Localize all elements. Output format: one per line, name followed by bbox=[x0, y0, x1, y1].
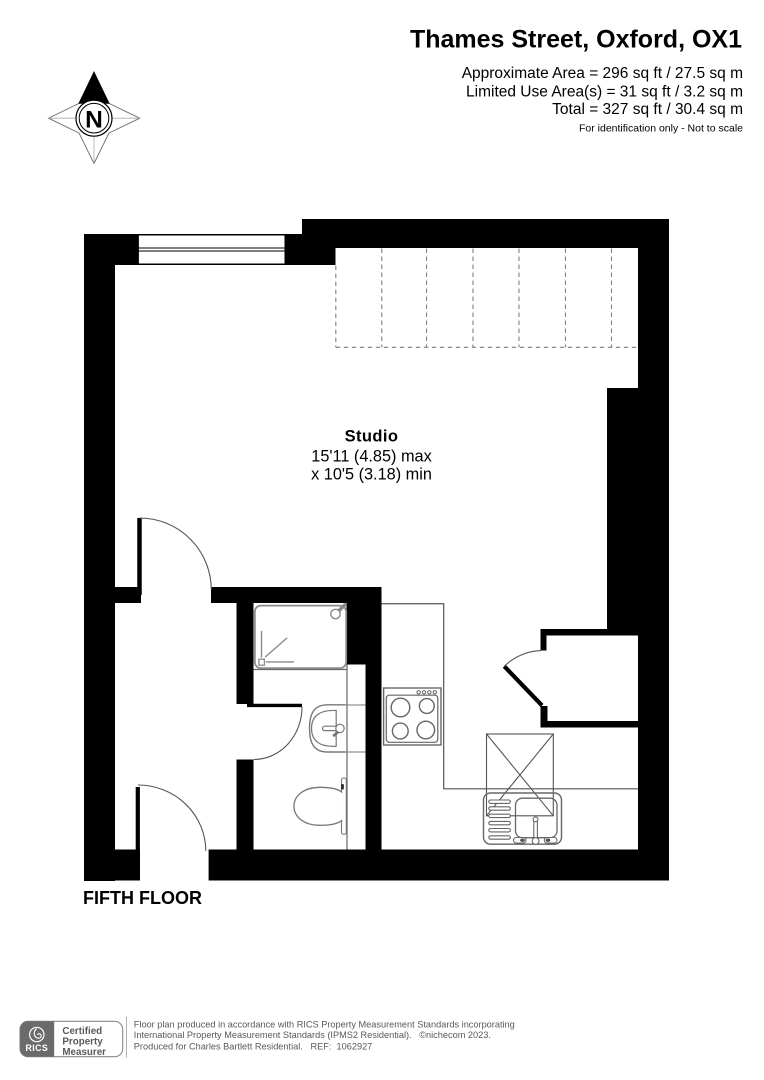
svg-text:International Property Measure: International Property Measurement Stand… bbox=[134, 1030, 491, 1040]
svg-text:Studio: Studio bbox=[345, 428, 399, 446]
svg-text:Thames Street, Oxford, OX1: Thames Street, Oxford, OX1 bbox=[410, 26, 742, 54]
svg-text:RICS: RICS bbox=[25, 1043, 48, 1053]
svg-text:Certified: Certified bbox=[62, 1026, 102, 1037]
svg-text:FIFTH FLOOR: FIFTH FLOOR bbox=[83, 888, 202, 908]
svg-text:Floor plan produced in accorda: Floor plan produced in accordance with R… bbox=[134, 1019, 515, 1029]
svg-text:Total = 327 sq ft / 30.4 sq m: Total = 327 sq ft / 30.4 sq m bbox=[552, 101, 743, 118]
svg-text:15'11 (4.85) max: 15'11 (4.85) max bbox=[311, 448, 431, 466]
svg-text:N: N bbox=[85, 106, 103, 133]
svg-text:Produced for Charles Bartlett: Produced for Charles Bartlett Residentia… bbox=[134, 1041, 372, 1051]
svg-text:Limited Use Area(s) = 31 sq ft: Limited Use Area(s) = 31 sq ft / 3.2 sq … bbox=[466, 83, 743, 100]
svg-text:Measurer: Measurer bbox=[62, 1047, 106, 1058]
svg-text:Approximate Area = 296 sq ft /: Approximate Area = 296 sq ft / 27.5 sq m bbox=[462, 65, 743, 82]
svg-text:Property: Property bbox=[62, 1036, 103, 1047]
svg-text:x 10'5 (3.18) min: x 10'5 (3.18) min bbox=[311, 466, 432, 484]
svg-text:For identification only - Not: For identification only - Not to scale bbox=[579, 123, 743, 135]
